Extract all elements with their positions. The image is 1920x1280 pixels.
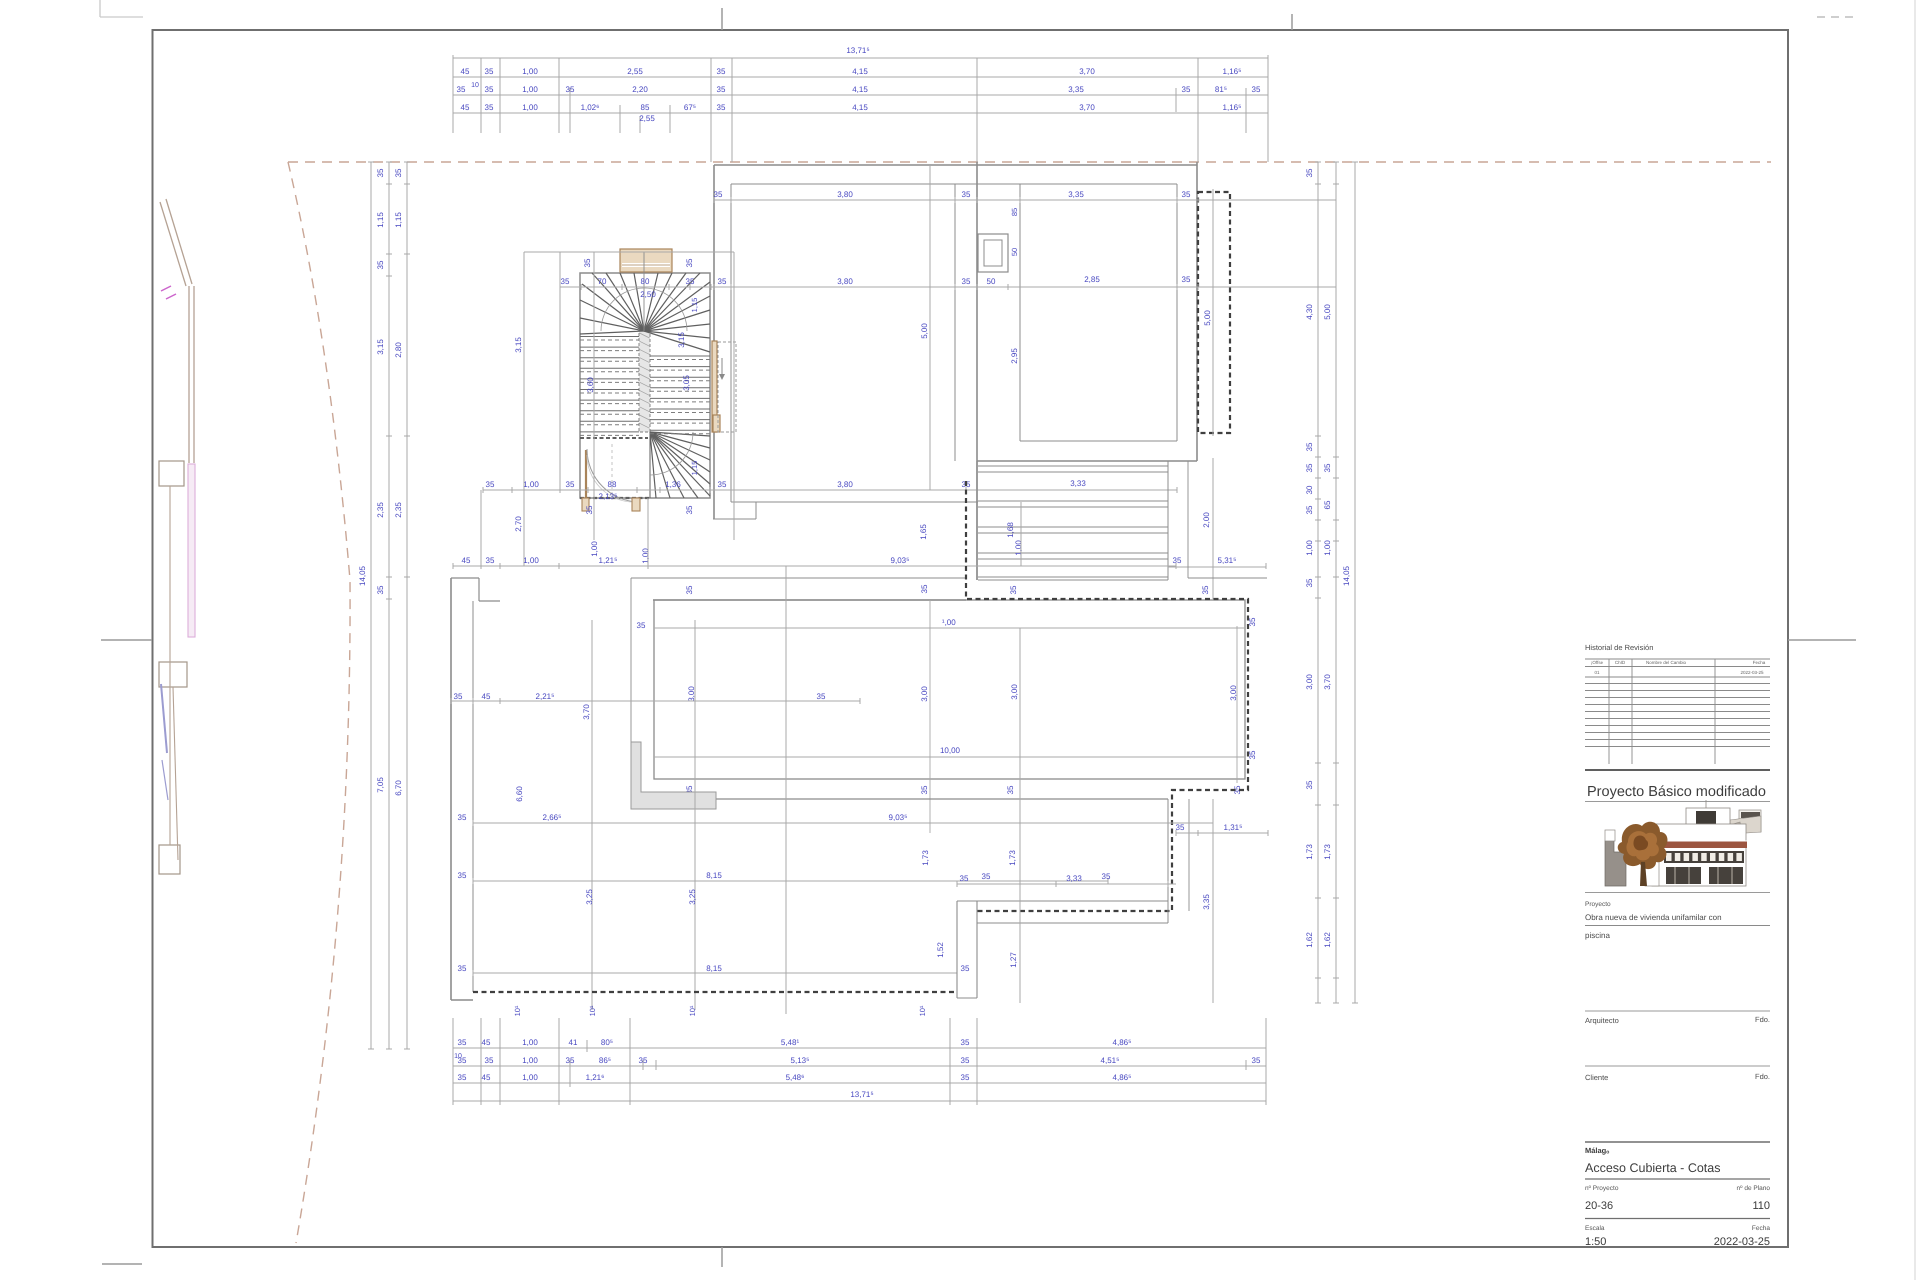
svg-text:35: 35: [1182, 275, 1191, 284]
svg-text:5,00: 5,00: [1203, 310, 1212, 326]
svg-text:Fecha: Fecha: [1753, 660, 1766, 665]
svg-text:13,71⁵: 13,71⁵: [850, 1090, 873, 1099]
svg-text:3,70: 3,70: [1079, 67, 1095, 76]
svg-text:35: 35: [962, 277, 971, 286]
svg-text:1,15: 1,15: [394, 212, 403, 228]
svg-text:35: 35: [920, 785, 929, 794]
svg-text:1,00: 1,00: [1323, 540, 1332, 556]
svg-text:35: 35: [717, 85, 726, 94]
svg-text:35: 35: [685, 505, 694, 514]
svg-text:1,73: 1,73: [921, 850, 930, 866]
svg-text:35: 35: [585, 505, 594, 514]
svg-text:35: 35: [1252, 85, 1261, 94]
svg-text:2,13⁵: 2,13⁵: [599, 492, 618, 501]
svg-text:2,80: 2,80: [394, 342, 403, 358]
svg-text:5,00: 5,00: [920, 323, 929, 339]
svg-text:35: 35: [486, 556, 495, 565]
svg-text:3,70: 3,70: [1323, 674, 1332, 690]
svg-text:45: 45: [482, 1038, 491, 1047]
svg-text:35: 35: [485, 85, 494, 94]
svg-text:35: 35: [485, 103, 494, 112]
svg-text:3,70: 3,70: [1079, 103, 1095, 112]
svg-text:85: 85: [1010, 208, 1019, 216]
svg-text:35: 35: [1102, 872, 1111, 881]
svg-text:35: 35: [718, 277, 727, 286]
svg-text:35: 35: [961, 1073, 970, 1082]
svg-text:35: 35: [685, 258, 694, 267]
svg-text:35: 35: [485, 1056, 494, 1065]
svg-text:1,00: 1,00: [641, 548, 650, 564]
svg-text:35: 35: [1182, 190, 1191, 199]
svg-text:3,00: 3,00: [1010, 684, 1019, 700]
svg-text:5,13⁵: 5,13⁵: [791, 1056, 810, 1065]
svg-text:35: 35: [457, 85, 466, 94]
svg-text:2,70: 2,70: [514, 516, 523, 532]
svg-text:45: 45: [482, 692, 491, 701]
svg-text:1,00: 1,00: [523, 556, 539, 565]
svg-text:3,60: 3,60: [586, 377, 595, 393]
svg-text:nº Proyecto: nº Proyecto: [1585, 1185, 1619, 1192]
svg-text:20-36: 20-36: [1585, 1200, 1613, 1212]
svg-text:Proyecto Básico modificado: Proyecto Básico modificado: [1587, 784, 1766, 800]
svg-text:2,95: 2,95: [1010, 348, 1019, 364]
svg-text:3,33: 3,33: [1066, 874, 1082, 883]
svg-text:1,00: 1,00: [522, 1056, 538, 1065]
svg-text:3,00: 3,00: [1229, 685, 1238, 701]
svg-text:Fecha: Fecha: [1752, 1225, 1770, 1232]
svg-text:35: 35: [1305, 442, 1314, 451]
svg-text:35: 35: [1173, 556, 1182, 565]
svg-text:35: 35: [1248, 617, 1257, 626]
svg-text:3,80: 3,80: [837, 277, 853, 286]
svg-text:3,25: 3,25: [585, 889, 594, 905]
svg-text:35: 35: [458, 1038, 467, 1047]
svg-text:35: 35: [960, 874, 969, 883]
svg-text:3,80: 3,80: [837, 190, 853, 199]
svg-text:35: 35: [817, 692, 826, 701]
svg-text:35: 35: [458, 964, 467, 973]
svg-text:35: 35: [376, 168, 385, 177]
svg-text:30: 30: [1305, 485, 1314, 494]
svg-text:2,21⁵: 2,21⁵: [536, 692, 555, 701]
svg-text:45: 45: [461, 67, 470, 76]
svg-text:Acceso Cubierta - Cotas: Acceso Cubierta - Cotas: [1585, 1161, 1720, 1175]
svg-text:65: 65: [1323, 500, 1332, 509]
svg-text:35: 35: [1009, 585, 1018, 594]
svg-text:80⁵: 80⁵: [601, 1038, 613, 1047]
svg-text:88: 88: [608, 480, 617, 489]
svg-text:5,31⁵: 5,31⁵: [1218, 556, 1237, 565]
svg-text:Escala: Escala: [1585, 1225, 1605, 1232]
svg-text:3,35: 3,35: [1202, 894, 1211, 910]
svg-text:35: 35: [962, 190, 971, 199]
svg-text:3,00: 3,00: [1305, 674, 1314, 690]
svg-text:3,80: 3,80: [837, 480, 853, 489]
svg-text:nº de Plano: nº de Plano: [1737, 1185, 1771, 1192]
svg-text:35: 35: [982, 872, 991, 881]
svg-text:35: 35: [458, 871, 467, 880]
svg-text:4,86⁵: 4,86⁵: [1113, 1073, 1132, 1082]
svg-text:3,00: 3,00: [920, 686, 929, 702]
svg-text:3,15: 3,15: [376, 339, 385, 355]
svg-text:Obra nueva de vivienda unifami: Obra nueva de vivienda unifamilar con: [1585, 913, 1722, 922]
svg-text:35: 35: [1305, 463, 1314, 472]
svg-text:1,36: 1,36: [665, 480, 681, 489]
svg-text:35: 35: [485, 67, 494, 76]
svg-text:1,16⁵: 1,16⁵: [1223, 103, 1242, 112]
svg-text:10¹: 10¹: [918, 1005, 927, 1016]
svg-text:9,03⁵: 9,03⁵: [889, 813, 908, 822]
svg-text:10,00: 10,00: [940, 746, 961, 755]
svg-text:1,21⁶: 1,21⁶: [586, 1073, 605, 1082]
svg-text:35: 35: [1305, 578, 1314, 587]
svg-text:10¹: 10¹: [588, 1005, 597, 1016]
svg-text:80: 80: [641, 277, 650, 286]
svg-text:10: 10: [471, 82, 479, 89]
svg-text:1,27: 1,27: [1009, 952, 1018, 968]
svg-text:1,00: 1,00: [590, 541, 599, 557]
svg-text:35: 35: [1176, 823, 1185, 832]
svg-text:2022-03-25: 2022-03-25: [1740, 670, 1764, 675]
svg-text:35: 35: [961, 1056, 970, 1065]
svg-text:1,00: 1,00: [1014, 540, 1023, 556]
svg-text:1,15: 1,15: [690, 298, 699, 313]
svg-text:¡Offse: ¡Offse: [1591, 660, 1604, 665]
svg-text:2,55: 2,55: [627, 67, 643, 76]
svg-text:3,25: 3,25: [688, 889, 697, 905]
svg-text:1,00: 1,00: [522, 85, 538, 94]
svg-text:7,05: 7,05: [376, 777, 385, 793]
svg-text:5,48¹: 5,48¹: [781, 1038, 800, 1047]
svg-text:110: 110: [1752, 1200, 1770, 1212]
svg-text:35: 35: [458, 1073, 467, 1082]
svg-text:45: 45: [482, 1073, 491, 1082]
svg-text:14,05: 14,05: [1342, 565, 1351, 586]
svg-text:35: 35: [458, 813, 467, 822]
svg-text:1,73: 1,73: [1305, 844, 1314, 860]
svg-text:Proyecto: Proyecto: [1585, 901, 1611, 908]
svg-text:35: 35: [1201, 585, 1210, 594]
svg-text:86⁵: 86⁵: [599, 1056, 611, 1065]
svg-text:2,35: 2,35: [394, 502, 403, 518]
svg-text:41: 41: [569, 1038, 578, 1047]
svg-text:50: 50: [987, 277, 996, 286]
svg-text:Cliente: Cliente: [1585, 1073, 1608, 1082]
svg-text:4,86⁵: 4,86⁵: [1113, 1038, 1132, 1047]
svg-text:Fdo.: Fdo.: [1755, 1072, 1770, 1081]
svg-text:35: 35: [486, 480, 495, 489]
svg-text:10¹: 10¹: [688, 1005, 697, 1016]
svg-text:5,48⁶: 5,48⁶: [786, 1073, 805, 1082]
svg-text:35: 35: [1182, 85, 1191, 94]
svg-text:35: 35: [637, 621, 646, 630]
svg-text:3,70: 3,70: [582, 704, 591, 720]
svg-text:3,35: 3,35: [1068, 85, 1084, 94]
svg-text:35: 35: [376, 585, 385, 594]
svg-text:1,15: 1,15: [376, 212, 385, 228]
svg-text:4,15: 4,15: [852, 103, 868, 112]
svg-text:4,15: 4,15: [852, 85, 868, 94]
svg-text:1,00: 1,00: [1305, 540, 1314, 556]
svg-text:35: 35: [714, 190, 723, 199]
svg-text:4,15: 4,15: [852, 67, 868, 76]
svg-text:5,00: 5,00: [1323, 304, 1332, 320]
svg-text:1,00: 1,00: [522, 1073, 538, 1082]
svg-text:35: 35: [920, 584, 929, 593]
svg-text:01: 01: [1594, 670, 1600, 675]
svg-text:1:50: 1:50: [1585, 1236, 1606, 1248]
svg-text:35: 35: [1252, 1056, 1261, 1065]
svg-text:2,35: 2,35: [376, 502, 385, 518]
svg-text:3,05: 3,05: [682, 375, 691, 391]
svg-text:35: 35: [566, 85, 575, 94]
svg-text:35: 35: [394, 168, 403, 177]
svg-text:1,21⁵: 1,21⁵: [599, 556, 618, 565]
svg-text:1,16⁵: 1,16⁵: [1223, 67, 1242, 76]
svg-text:35: 35: [717, 67, 726, 76]
svg-text:1,65: 1,65: [919, 524, 928, 540]
svg-text:4,30: 4,30: [1305, 304, 1314, 320]
svg-text:Málagₒ: Málagₒ: [1585, 1146, 1609, 1155]
svg-text:1,73: 1,73: [1008, 850, 1017, 866]
svg-text:13,71⁵: 13,71⁵: [846, 46, 869, 55]
svg-text:3,33: 3,33: [1070, 479, 1086, 488]
svg-text:3,35: 3,35: [1068, 190, 1084, 199]
svg-text:35: 35: [566, 1056, 575, 1065]
svg-text:67⁵: 67⁵: [684, 103, 696, 112]
svg-text:35: 35: [566, 480, 575, 489]
svg-text:¹,00: ¹,00: [940, 618, 956, 627]
svg-text:35: 35: [376, 260, 385, 269]
svg-text:6,70: 6,70: [394, 780, 403, 796]
svg-text:45: 45: [461, 103, 470, 112]
svg-text:35: 35: [961, 1038, 970, 1047]
svg-text:35: 35: [717, 103, 726, 112]
svg-text:Historial de Revisión: Historial de Revisión: [1585, 643, 1653, 652]
svg-text:2,00: 2,00: [1202, 512, 1211, 528]
svg-text:1,62: 1,62: [1305, 932, 1314, 948]
svg-text:2,85: 2,85: [1084, 275, 1100, 284]
svg-text:Nombre del Cambio: Nombre del Cambio: [1646, 660, 1687, 665]
svg-text:1,68: 1,68: [1006, 522, 1015, 538]
svg-text:1,52: 1,52: [936, 942, 945, 958]
svg-text:3,15: 3,15: [677, 332, 686, 348]
svg-text:50: 50: [1010, 248, 1019, 256]
svg-text:6,60: 6,60: [515, 786, 524, 802]
svg-text:2,55: 2,55: [639, 114, 655, 123]
svg-text:35: 35: [583, 258, 592, 267]
svg-text:2,20: 2,20: [632, 85, 648, 94]
svg-text:35: 35: [1305, 505, 1314, 514]
svg-text:1,31⁵: 1,31⁵: [1224, 823, 1243, 832]
svg-text:35: 35: [686, 277, 695, 286]
svg-text:Fdo.: Fdo.: [1755, 1015, 1770, 1024]
svg-text:35: 35: [1006, 785, 1015, 794]
svg-text:1,73: 1,73: [1323, 844, 1332, 860]
svg-text:14,05: 14,05: [358, 565, 367, 586]
svg-text:35: 35: [454, 692, 463, 701]
svg-text:1,00: 1,00: [522, 1038, 538, 1047]
svg-text:45: 45: [462, 556, 471, 565]
svg-text:35: 35: [639, 1056, 648, 1065]
svg-text:1,00: 1,00: [523, 480, 539, 489]
svg-text:1,02⁶: 1,02⁶: [581, 103, 600, 112]
svg-text:10¹: 10¹: [513, 1005, 522, 1016]
svg-text:3,15: 3,15: [514, 337, 523, 353]
svg-text:70: 70: [598, 277, 607, 286]
svg-text:35: 35: [1248, 750, 1257, 759]
svg-text:35: 35: [718, 480, 727, 489]
svg-text:1,62: 1,62: [1323, 932, 1332, 948]
svg-text:1,00: 1,00: [522, 103, 538, 112]
svg-text:35: 35: [1305, 780, 1314, 789]
svg-text:35: 35: [1323, 463, 1332, 472]
svg-text:2022-03-25: 2022-03-25: [1714, 1236, 1770, 1248]
svg-text:9,03⁵: 9,03⁵: [891, 556, 910, 565]
svg-text:piscina: piscina: [1585, 931, 1610, 940]
svg-text:85: 85: [641, 103, 650, 112]
svg-text:8,15: 8,15: [706, 871, 722, 880]
svg-text:2,50: 2,50: [640, 290, 656, 299]
svg-text:2,66⁵: 2,66⁵: [543, 813, 562, 822]
svg-text:8,15: 8,15: [706, 964, 722, 973]
svg-text:35: 35: [1305, 168, 1314, 177]
svg-text:35: 35: [961, 964, 970, 973]
svg-text:35: 35: [685, 585, 694, 594]
svg-text:4,51⁵: 4,51⁵: [1101, 1056, 1120, 1065]
svg-text:35: 35: [561, 277, 570, 286]
svg-text:1,00: 1,00: [522, 67, 538, 76]
svg-text:81⁵: 81⁵: [1215, 85, 1227, 94]
svg-text:1,15: 1,15: [690, 461, 699, 476]
svg-text:Arquitecto: Arquitecto: [1585, 1016, 1619, 1025]
svg-text:10: 10: [454, 1053, 462, 1060]
svg-text:ChID: ChID: [1615, 660, 1626, 665]
